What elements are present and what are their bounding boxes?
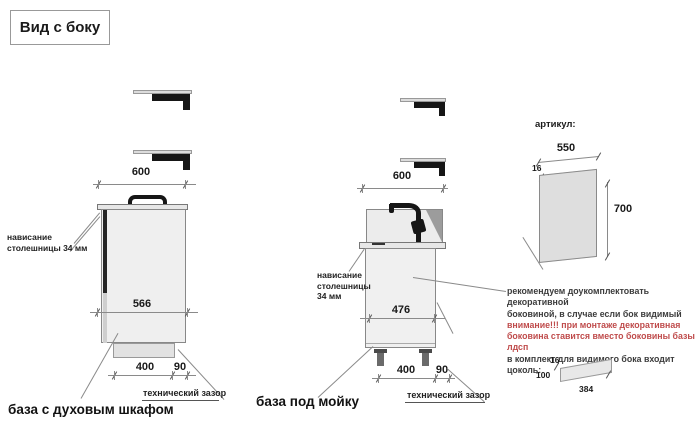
dim-90-label: 90: [170, 361, 190, 373]
dim-400-label: 400: [131, 361, 159, 373]
sink-cabinet-body: [365, 248, 436, 348]
dim-600-label: 600: [388, 170, 416, 182]
faucet-spout: [389, 204, 394, 213]
article-label: артикул:: [535, 119, 576, 130]
page-title-text: Вид с боку: [20, 19, 101, 36]
plinth-dim-384: 384: [579, 384, 593, 394]
oven-view-caption: база с духовым шкафом: [8, 402, 174, 417]
plinth-dim-16: 16: [550, 355, 559, 365]
technical-gap-label: технический зазор: [143, 388, 226, 398]
sink-drain-mark: [372, 243, 385, 245]
dim-400-label: 400: [392, 364, 420, 376]
oven-plinth: [113, 343, 175, 358]
page-title: Вид с боку: [10, 10, 110, 45]
oven-cabinet-body: [101, 209, 186, 343]
sink-view-caption: база под мойку: [256, 394, 359, 409]
dim-line: [93, 184, 196, 185]
note-line-warning: боковина ставится вместо боковины базы л…: [507, 331, 700, 354]
decorative-side-panel: [539, 169, 597, 263]
plinth-dim-100: 100: [536, 370, 550, 380]
note-line: боковиной, в случае если бок видимый: [507, 309, 700, 320]
dim-600-label: 600: [127, 166, 155, 178]
note-line: рекомендуем доукомплектовать декоративно…: [507, 286, 700, 309]
dim-700-label: 700: [611, 203, 635, 215]
note-line-warning: внимание!!! при монтаже декоративная: [507, 320, 700, 331]
dim-16-label: 16: [532, 163, 541, 173]
side-view-drawing: Вид с боку 600: [0, 0, 700, 428]
oven-door-edge: [103, 210, 107, 293]
oven-door-edge-lower: [103, 293, 107, 343]
technical-gap-label: технический зазор: [407, 390, 490, 400]
overhang-label: нависание столешницы 34 мм: [317, 270, 371, 302]
dim-550-label: 550: [552, 142, 580, 154]
dim-566-label: 566: [128, 298, 156, 310]
overhang-label: нависание столешницы 34 мм: [7, 232, 87, 253]
dim-476-label: 476: [387, 304, 415, 316]
